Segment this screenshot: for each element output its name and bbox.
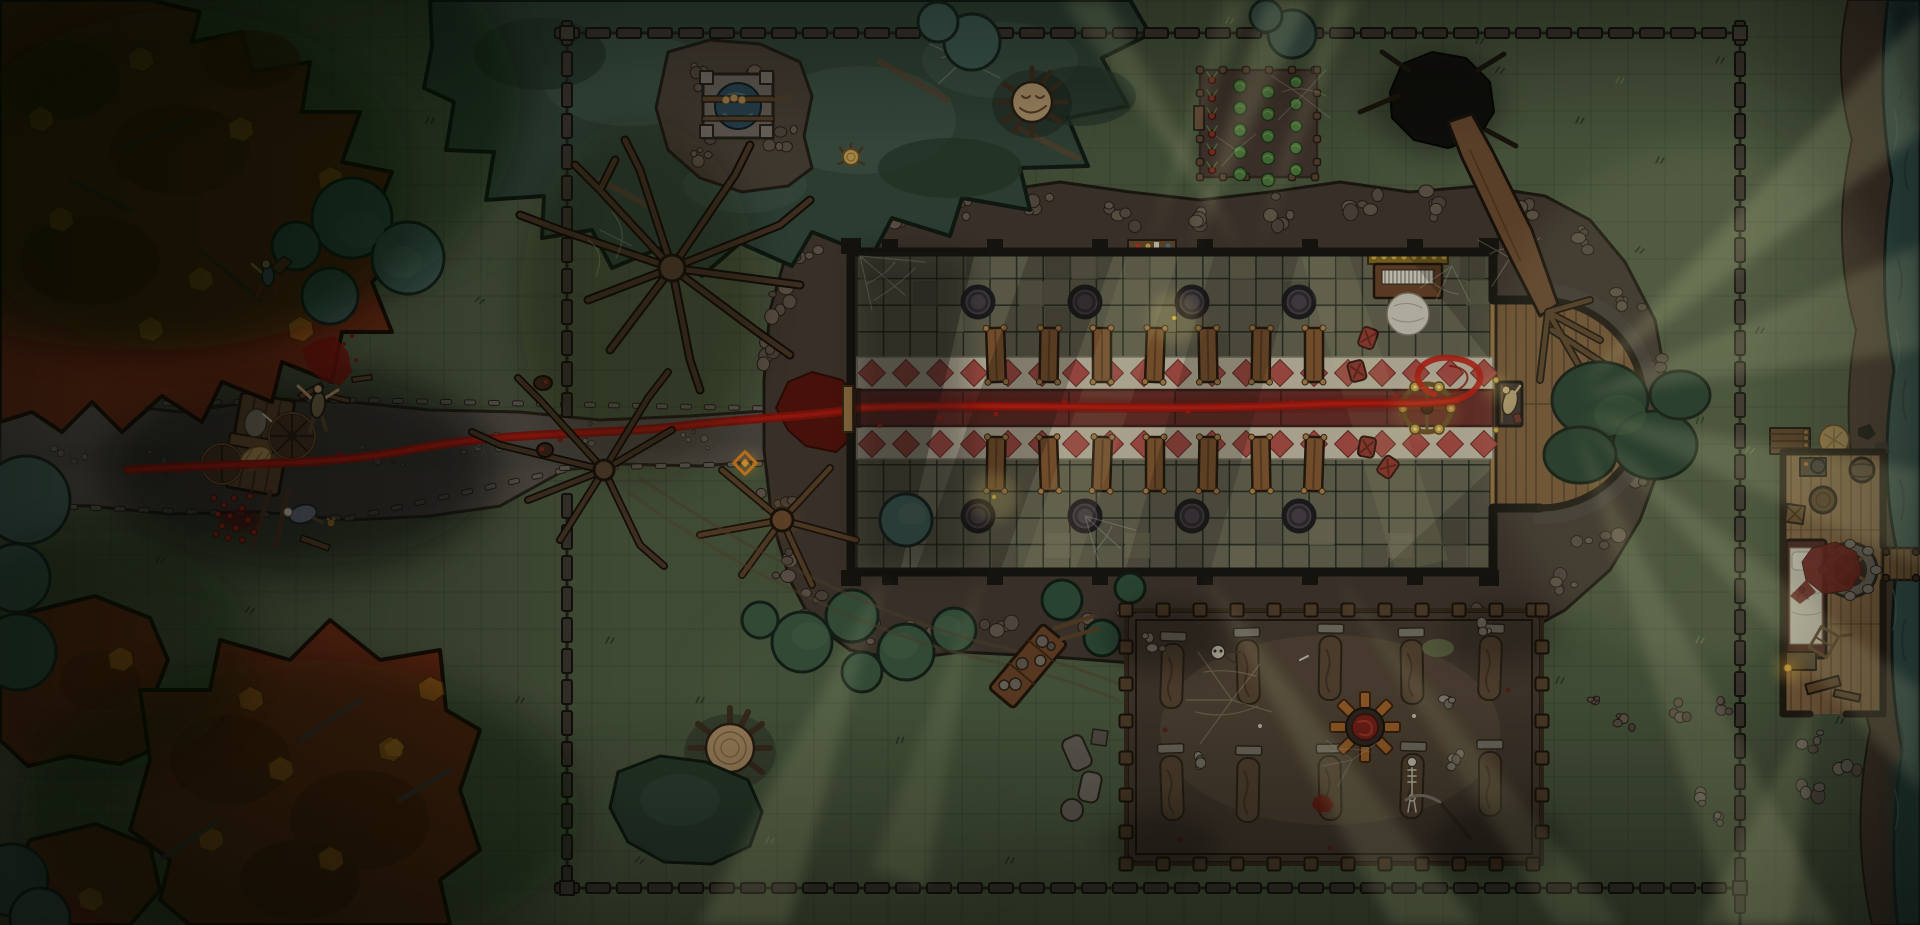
map-viewport xyxy=(0,0,1920,925)
battlemap-canvas xyxy=(0,0,1920,925)
